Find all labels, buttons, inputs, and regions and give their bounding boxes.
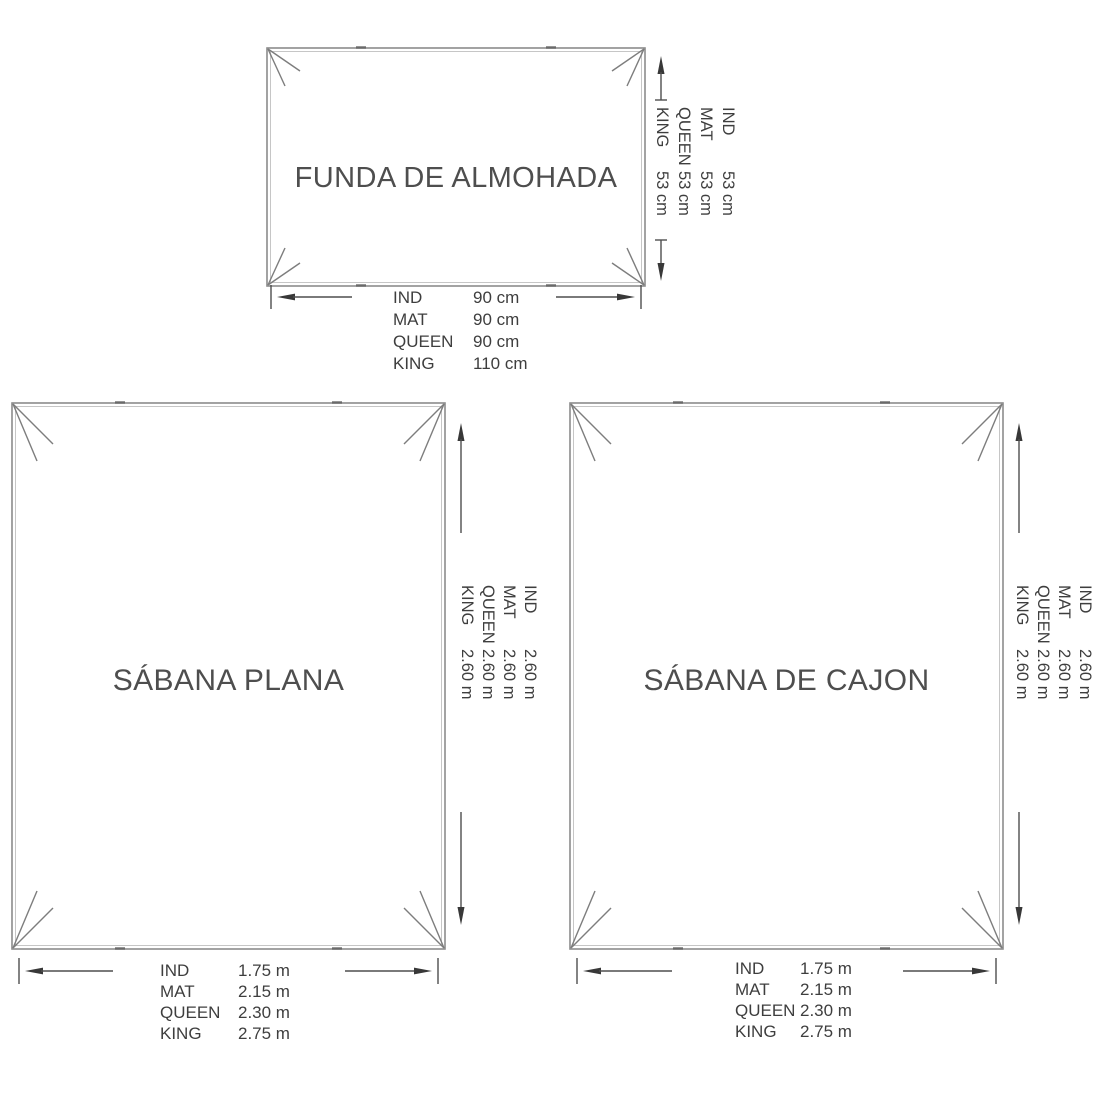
size-value: 2.75 m	[238, 1023, 290, 1044]
pillowcase-height-table: IND 53 cm MAT 53 cm QUEEN 53 cm KING 53 …	[651, 107, 739, 233]
size-value: 1.75 m	[238, 960, 290, 981]
size-value: 110 cm	[473, 353, 528, 375]
size-label: QUEEN	[735, 1000, 800, 1021]
dim-row: MAT 2.60 m	[498, 585, 519, 713]
size-value: 90 cm	[473, 331, 519, 353]
size-value: 2.60 m	[519, 649, 540, 699]
size-value: 53 cm	[717, 171, 739, 216]
size-value: 2.15 m	[800, 979, 852, 1000]
size-label: MAT	[498, 585, 519, 649]
size-label: QUEEN	[477, 585, 498, 649]
size-label: QUEEN	[393, 331, 473, 353]
size-label: KING	[651, 107, 673, 171]
size-label: KING	[735, 1021, 800, 1042]
size-value: 2.60 m	[1011, 649, 1032, 699]
dim-row: KING 2.60 m	[456, 585, 477, 713]
size-label: KING	[1011, 585, 1032, 649]
size-value: 2.60 m	[1074, 649, 1095, 699]
dim-row: QUEEN 2.60 m	[477, 585, 498, 713]
dim-row: KING 110 cm	[393, 353, 528, 375]
size-label: IND	[160, 960, 238, 981]
size-value: 90 cm	[473, 287, 519, 309]
size-value: 1.75 m	[800, 958, 852, 979]
dim-row: QUEEN 2.30 m	[735, 1000, 852, 1021]
dim-row: MAT 2.60 m	[1053, 585, 1074, 713]
dim-row: KING 2.75 m	[735, 1021, 852, 1042]
size-value: 2.15 m	[238, 981, 290, 1002]
size-value: 53 cm	[651, 171, 673, 216]
dim-row: IND 1.75 m	[160, 960, 290, 981]
size-value: 2.30 m	[800, 1000, 852, 1021]
size-value: 2.60 m	[456, 649, 477, 699]
dim-row: IND 2.60 m	[519, 585, 540, 713]
fitted-sheet-width-table: IND 1.75 m MAT 2.15 m QUEEN 2.30 m KING …	[735, 958, 852, 1042]
size-label: MAT	[160, 981, 238, 1002]
pillowcase-width-table: IND 90 cm MAT 90 cm QUEEN 90 cm KING 110…	[393, 287, 528, 375]
size-label: MAT	[393, 309, 473, 331]
dim-row: QUEEN 2.60 m	[1032, 585, 1053, 713]
dim-row: MAT 53 cm	[695, 107, 717, 233]
size-label: MAT	[735, 979, 800, 1000]
dim-row: KING 53 cm	[651, 107, 673, 233]
fitted-sheet-title: SÁBANA DE CAJON	[570, 664, 1003, 698]
dim-row: MAT 2.15 m	[160, 981, 290, 1002]
size-label: KING	[393, 353, 473, 375]
size-label: IND	[735, 958, 800, 979]
dim-row: IND 53 cm	[717, 107, 739, 233]
size-value: 53 cm	[695, 171, 717, 216]
dim-row: QUEEN 90 cm	[393, 331, 528, 353]
flat-sheet-title: SÁBANA PLANA	[12, 664, 445, 698]
size-value: 2.60 m	[1053, 649, 1074, 699]
size-label: IND	[519, 585, 540, 649]
size-label: MAT	[695, 107, 717, 171]
pillowcase-title: FUNDA DE ALMOHADA	[267, 162, 645, 195]
size-label: QUEEN	[160, 1002, 238, 1023]
dim-row: MAT 2.15 m	[735, 979, 852, 1000]
dim-row: QUEEN 53 cm	[673, 107, 695, 233]
size-label: KING	[160, 1023, 238, 1044]
size-value: 90 cm	[473, 309, 519, 331]
dim-row: QUEEN 2.30 m	[160, 1002, 290, 1023]
size-value: 2.75 m	[800, 1021, 852, 1042]
size-label: IND	[717, 107, 739, 171]
size-label: MAT	[1053, 585, 1074, 649]
size-label: IND	[1074, 585, 1095, 649]
dim-row: IND 90 cm	[393, 287, 528, 309]
dim-row: IND 1.75 m	[735, 958, 852, 979]
fitted-sheet-height-table: IND 2.60 m MAT 2.60 m QUEEN 2.60 m KING …	[1011, 585, 1095, 713]
dim-row: KING 2.75 m	[160, 1023, 290, 1044]
dim-row: KING 2.60 m	[1011, 585, 1032, 713]
flat-sheet-height-table: IND 2.60 m MAT 2.60 m QUEEN 2.60 m KING …	[456, 585, 540, 713]
size-label: QUEEN	[1032, 585, 1053, 649]
size-value: 2.60 m	[1032, 649, 1053, 699]
size-diagram: FUNDA DE ALMOHADA SÁBANA PLANA SÁBANA DE…	[0, 0, 1109, 1109]
size-value: 2.60 m	[477, 649, 498, 699]
size-value: 2.60 m	[498, 649, 519, 699]
flat-sheet-width-table: IND 1.75 m MAT 2.15 m QUEEN 2.30 m KING …	[160, 960, 290, 1044]
size-label: QUEEN	[673, 107, 695, 171]
dim-row: IND 2.60 m	[1074, 585, 1095, 713]
size-label: IND	[393, 287, 473, 309]
size-value: 2.30 m	[238, 1002, 290, 1023]
dim-row: MAT 90 cm	[393, 309, 528, 331]
size-label: KING	[456, 585, 477, 649]
size-value: 53 cm	[673, 171, 695, 216]
